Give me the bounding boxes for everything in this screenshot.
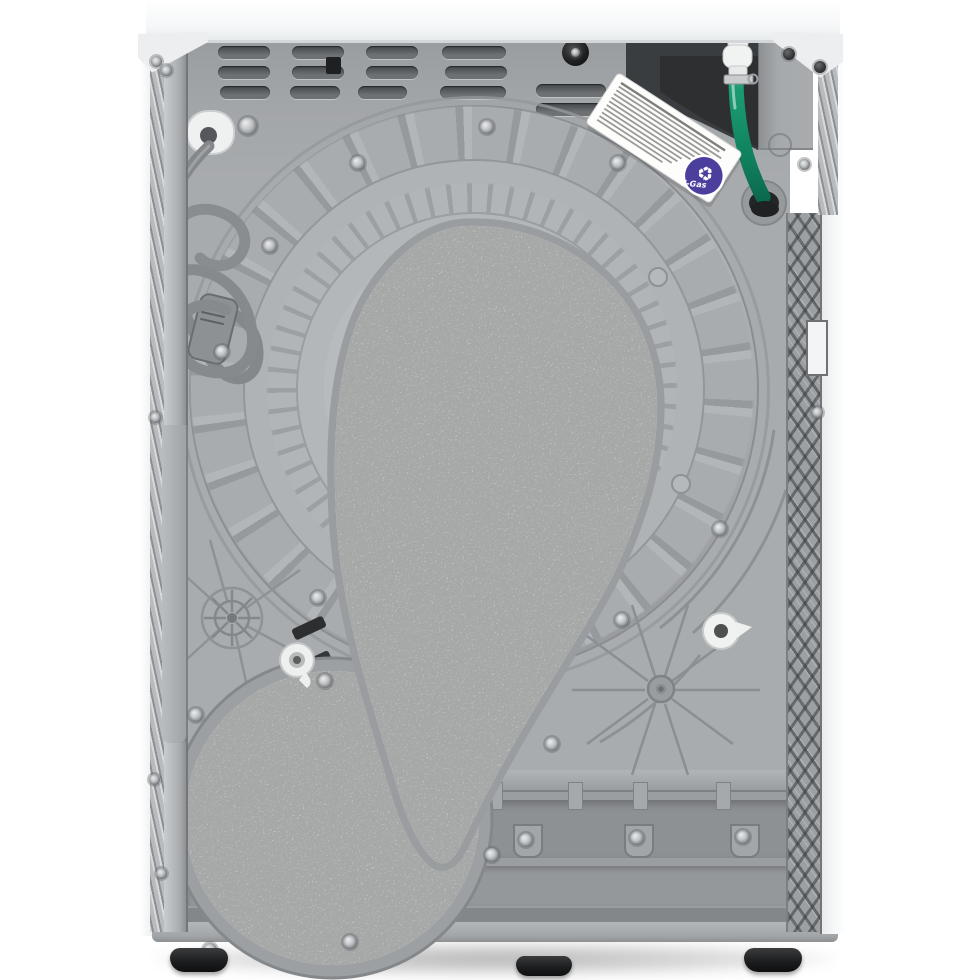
foot-right [744,948,802,972]
vent-slot [366,46,418,59]
vent-slot [220,86,270,99]
right-notch [806,320,828,376]
base-lip [152,922,838,942]
screw [615,613,629,627]
screw [161,65,172,76]
screw-dark [783,48,795,60]
screw [151,56,162,67]
screw [799,159,810,170]
base-tab [633,782,648,810]
screw [343,935,357,949]
screw [545,737,559,751]
vent-slot [218,46,270,59]
screw [149,774,160,785]
screw [630,831,644,845]
hex-bolt [239,117,257,135]
screw [736,830,750,844]
cord-grommet-hole [200,127,217,144]
screw [318,674,332,688]
screw [812,407,823,418]
vent-slot [442,46,506,59]
vent-slot [290,86,340,99]
screw [480,120,494,134]
screw [215,345,229,359]
product-photo: ♻ F-Gas [0,0,980,980]
screw [150,412,161,423]
panel-dimple [768,133,792,157]
vent-slot [536,84,606,97]
base-tab [488,782,503,810]
base-bottom-strip [166,908,822,922]
screw [156,868,167,879]
screw-dark [814,61,826,73]
screw [351,156,365,170]
floor-shadow [155,942,835,976]
base-tab [415,782,430,810]
screw [611,156,625,170]
screw [519,833,533,847]
foot-left [170,948,228,972]
screw [189,708,203,722]
connector-block [326,57,341,74]
screw [713,522,727,536]
base-recess-row2 [188,866,808,906]
vent-slot [366,66,418,79]
left-bracket-bar [162,425,188,743]
vent-slot [358,86,407,99]
vent-slot [445,66,507,79]
drum-center [324,240,620,536]
drum-boss [671,474,691,494]
foot-center [516,956,572,976]
base-tab [568,782,583,810]
screw [485,848,499,862]
worktop [146,0,840,43]
vent-slot [218,66,270,79]
base-tab [716,782,731,810]
drum-boss [648,267,668,287]
screw [571,48,580,57]
screw [311,591,325,605]
screw [263,239,277,253]
